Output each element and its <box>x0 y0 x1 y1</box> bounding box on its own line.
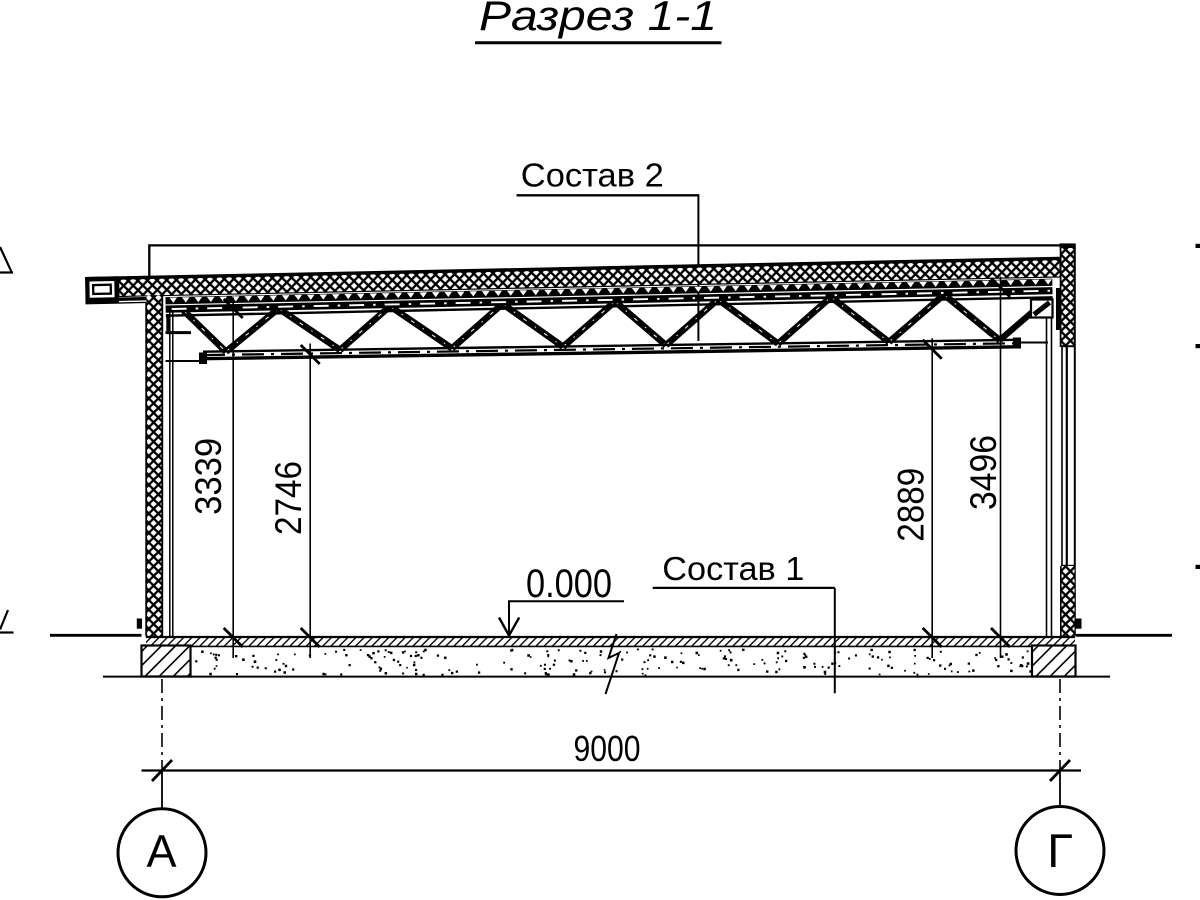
svg-text:Состав 2: Состав 2 <box>521 157 664 194</box>
svg-text:0.000: 0.000 <box>526 562 612 606</box>
svg-text:Состав 1: Состав 1 <box>662 550 804 587</box>
svg-text:Г: Г <box>1047 824 1072 877</box>
svg-text:2746: 2746 <box>267 461 309 535</box>
svg-text:А: А <box>146 826 176 877</box>
svg-text:2889: 2889 <box>889 468 931 542</box>
svg-text:3339: 3339 <box>187 438 229 515</box>
svg-text:Разрез 1-1: Разрез 1-1 <box>479 0 717 39</box>
svg-text:3496: 3496 <box>962 435 1004 510</box>
svg-text:9000: 9000 <box>574 728 641 769</box>
